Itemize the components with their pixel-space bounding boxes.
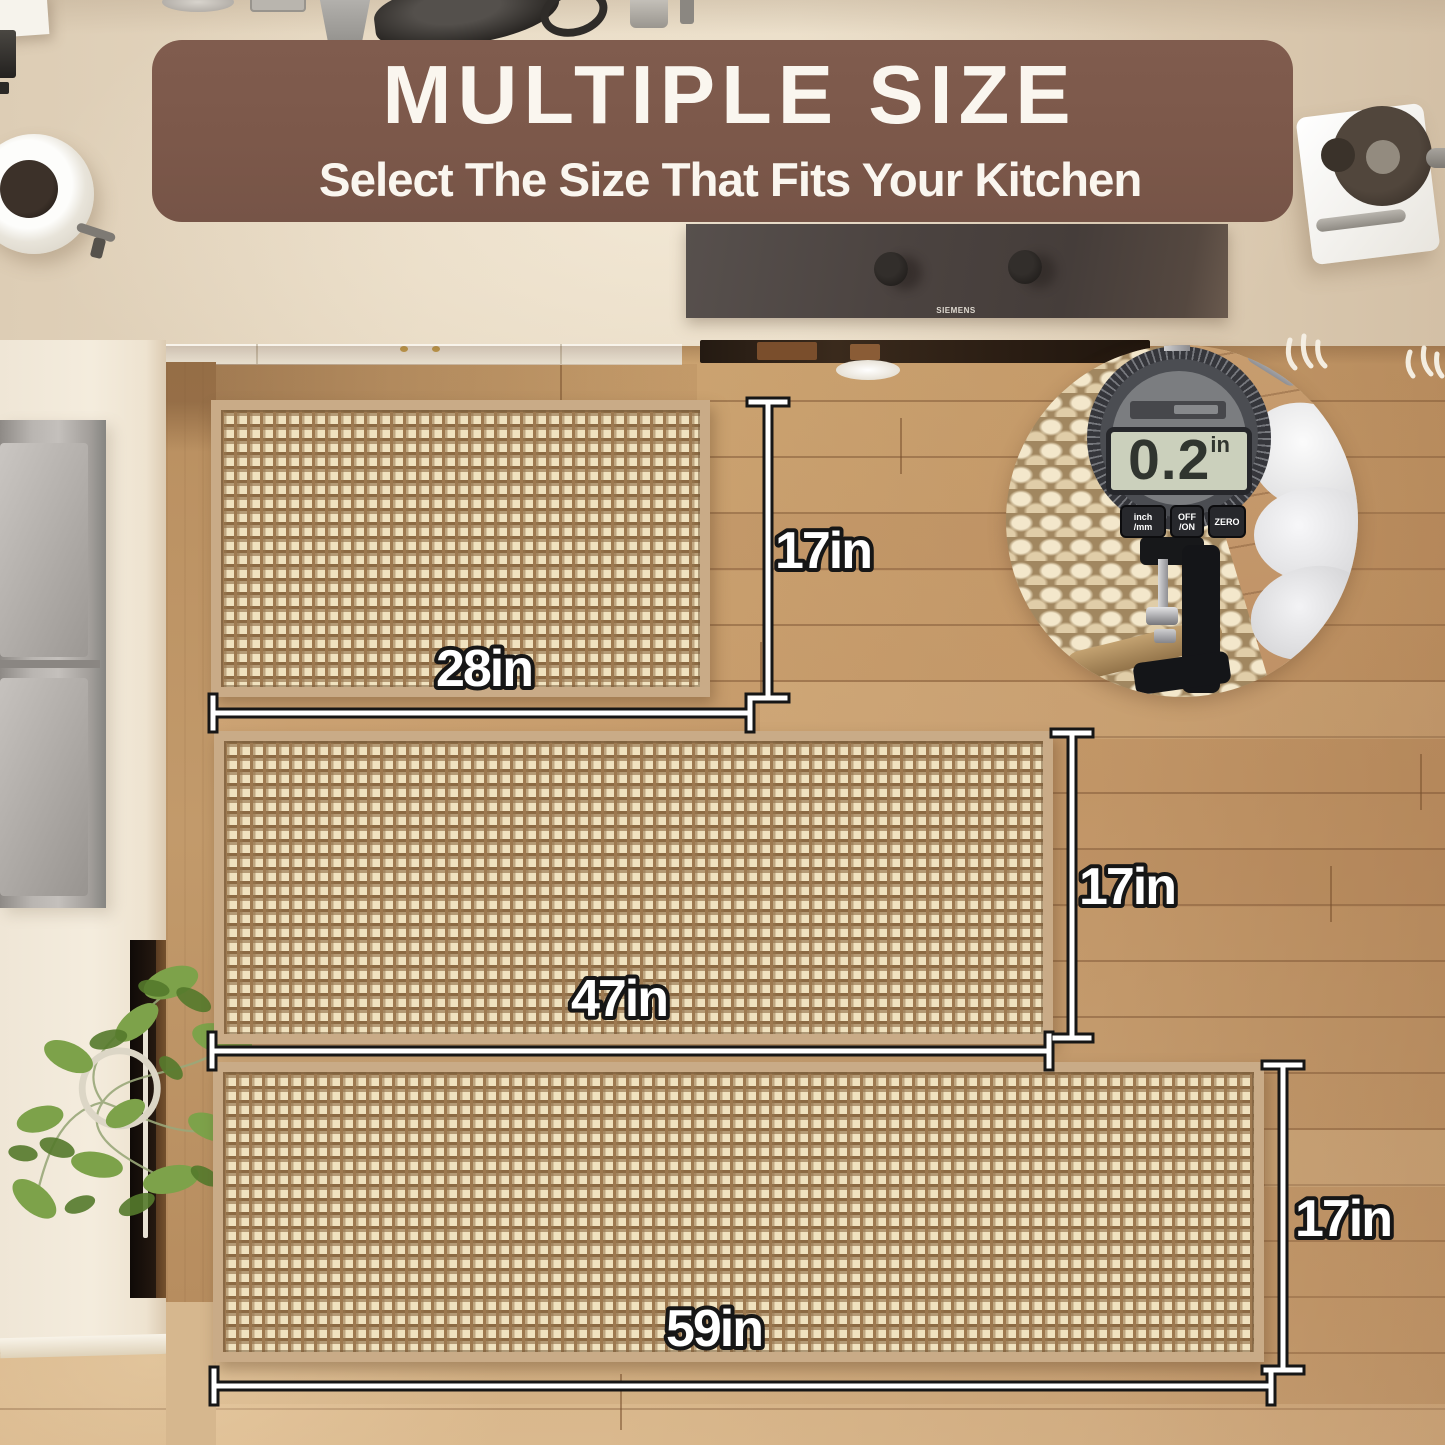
svg-text:17in: 17in [1295,1190,1391,1248]
svg-text:47in: 47in [571,970,667,1028]
svg-text:28in: 28in [436,640,532,698]
svg-text:59in: 59in [666,1300,762,1358]
svg-text:17in: 17in [775,522,871,580]
svg-text:17in: 17in [1079,858,1175,916]
